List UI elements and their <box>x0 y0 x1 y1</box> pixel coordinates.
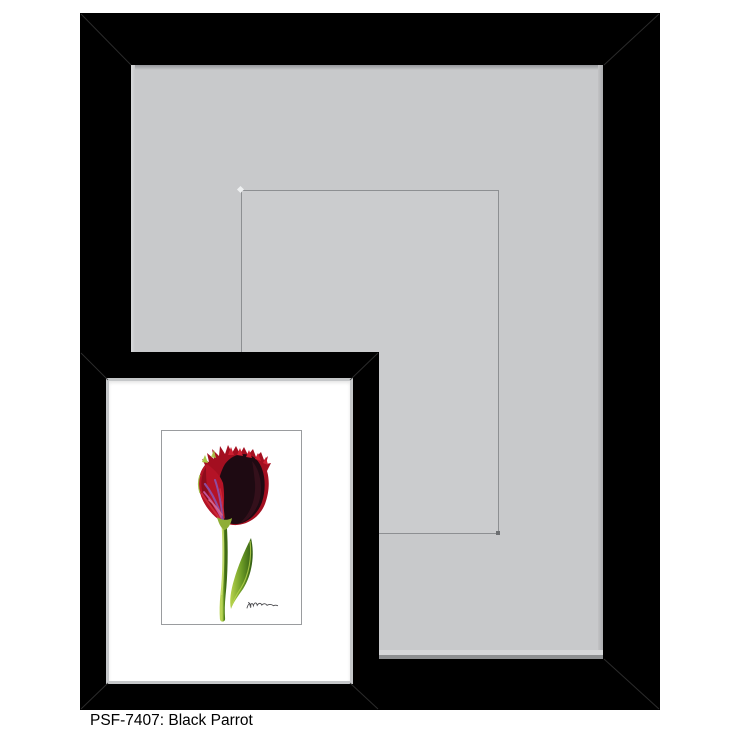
product-caption: PSF-7407: Black Parrot <box>90 711 253 730</box>
tulip-leaf <box>230 538 253 609</box>
tulip-flower <box>199 445 272 530</box>
groove-corner-notch <box>237 186 244 193</box>
artist-signature <box>247 603 278 609</box>
mat-bevel-top <box>131 65 603 70</box>
product-image: PSF-7407: Black Parrot <box>0 0 738 738</box>
print-area <box>161 430 302 625</box>
inset-frame-mat <box>109 381 350 681</box>
tulip-stem <box>222 523 225 619</box>
inset-preview-frame <box>80 352 379 710</box>
tulip-illustration <box>162 431 301 624</box>
groove-corner-dot <box>496 531 500 535</box>
mat-bevel-right <box>598 65 603 659</box>
